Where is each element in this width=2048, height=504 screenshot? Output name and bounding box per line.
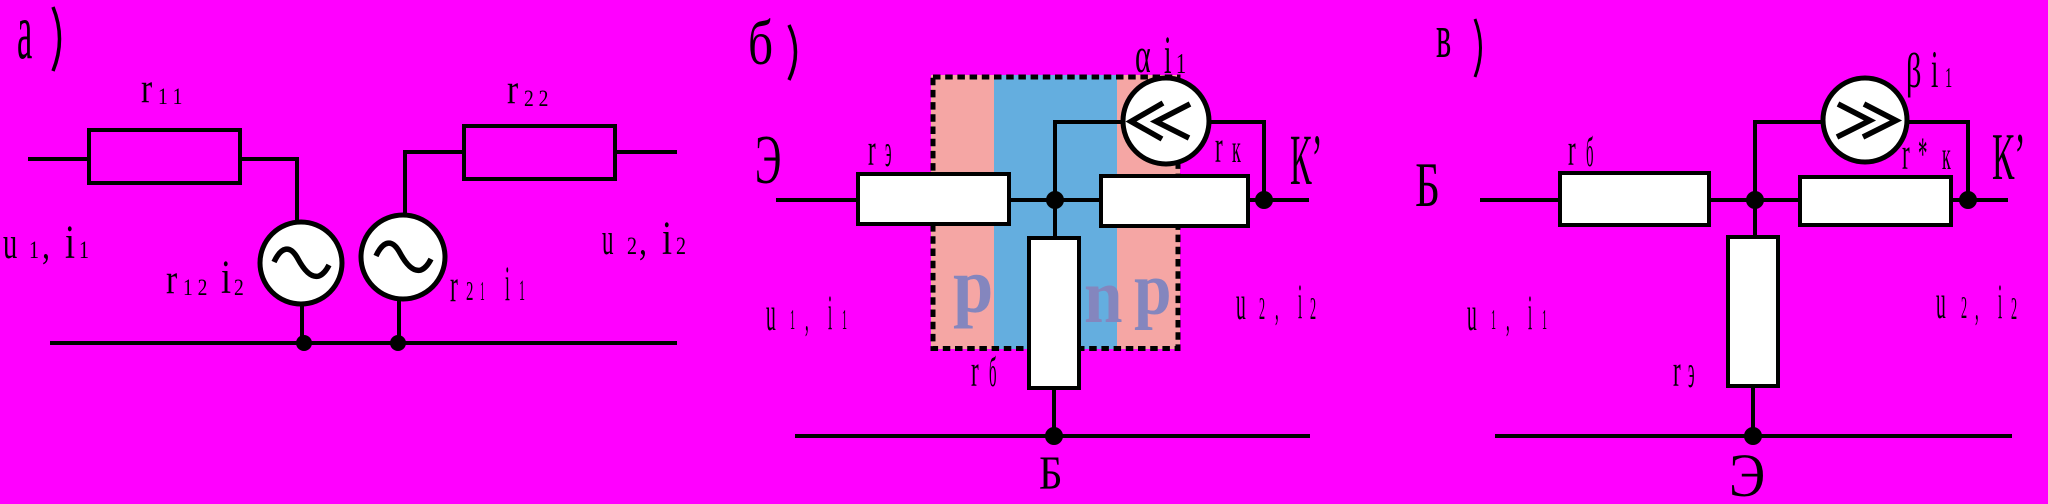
svg-text:i: i: [1998, 273, 2002, 329]
svg-text:p: p: [953, 244, 993, 330]
svg-text:2: 2: [466, 276, 473, 306]
svg-text:i: i: [1528, 284, 1532, 340]
svg-text:1: 1: [1176, 49, 1186, 80]
svg-text:r: r: [1673, 346, 1681, 397]
svg-text:Э: Э: [755, 122, 781, 199]
svg-text:б: б: [748, 8, 773, 79]
svg-text:u: u: [1936, 276, 1946, 330]
svg-text:2: 2: [676, 232, 686, 260]
svg-text:1: 1: [1491, 304, 1496, 336]
svg-text:u: u: [1236, 277, 1246, 331]
svg-text:э: э: [1688, 345, 1694, 398]
svg-text:r: r: [971, 346, 979, 397]
svg-text:α: α: [1135, 27, 1151, 83]
svg-text:u: u: [766, 288, 776, 342]
svg-text:β: β: [1906, 44, 1921, 98]
svg-text:к: к: [1942, 133, 1951, 178]
svg-text:p: p: [1134, 248, 1172, 331]
svg-text:u: u: [602, 214, 614, 265]
svg-text:1: 1: [1542, 304, 1547, 336]
svg-text:б: б: [989, 349, 996, 396]
svg-text:К’: К’: [1992, 121, 2025, 194]
svg-text:2 2: 2 2: [524, 86, 548, 112]
svg-text:u: u: [1467, 288, 1477, 342]
svg-text:r: r: [1215, 122, 1223, 173]
svg-text:2: 2: [234, 275, 244, 301]
svg-text:2: 2: [627, 232, 637, 260]
svg-text:,: ,: [1275, 283, 1279, 328]
svg-text:i: i: [1164, 26, 1172, 85]
svg-text:1 1: 1 1: [158, 84, 182, 110]
svg-text:1: 1: [790, 304, 795, 336]
svg-text:r: r: [141, 66, 152, 112]
svg-text:,: ,: [805, 294, 809, 339]
svg-text:i: i: [221, 251, 231, 304]
svg-text:2: 2: [1310, 291, 1316, 327]
svg-text:1 2: 1 2: [183, 275, 207, 301]
svg-text:к: к: [1232, 126, 1241, 171]
svg-text:n: n: [1084, 254, 1123, 339]
svg-text:1: 1: [480, 277, 485, 306]
svg-text:i: i: [1298, 273, 1302, 329]
svg-text:1: 1: [29, 236, 39, 264]
svg-text:r: r: [1902, 129, 1910, 180]
svg-text:r: r: [868, 125, 876, 176]
svg-text:r: r: [166, 257, 177, 303]
svg-text:u: u: [3, 218, 17, 268]
svg-text:i: i: [1931, 41, 1938, 99]
svg-text:Б: Б: [1415, 149, 1440, 220]
svg-text:б: б: [1586, 129, 1593, 176]
svg-text:1: 1: [1945, 62, 1952, 94]
svg-text:2: 2: [2011, 291, 2017, 327]
svg-text:Э: Э: [1729, 441, 1765, 504]
svg-text:,: ,: [639, 219, 647, 263]
svg-text:r: r: [450, 261, 458, 313]
svg-text:i: i: [828, 284, 832, 340]
svg-text:i: i: [662, 212, 672, 265]
svg-text:,: ,: [42, 223, 50, 267]
svg-text:2: 2: [1259, 291, 1265, 327]
svg-text:Б: Б: [1039, 446, 1062, 500]
svg-text:,: ,: [1506, 294, 1510, 339]
svg-text:,: ,: [1975, 283, 1979, 328]
svg-text:2: 2: [1961, 290, 1967, 326]
svg-text:а: а: [17, 0, 32, 76]
svg-text:*: *: [1918, 127, 1927, 180]
svg-text:1: 1: [842, 304, 847, 336]
svg-text:i: i: [505, 257, 510, 312]
svg-text:1: 1: [79, 236, 89, 264]
svg-text:r: r: [1568, 125, 1576, 176]
svg-text:i: i: [65, 216, 75, 269]
svg-text:в: в: [1436, 2, 1451, 71]
svg-text:э: э: [885, 124, 891, 177]
svg-text:К’: К’: [1290, 121, 1322, 201]
svg-text:r: r: [507, 67, 518, 113]
svg-text:1: 1: [519, 274, 525, 307]
